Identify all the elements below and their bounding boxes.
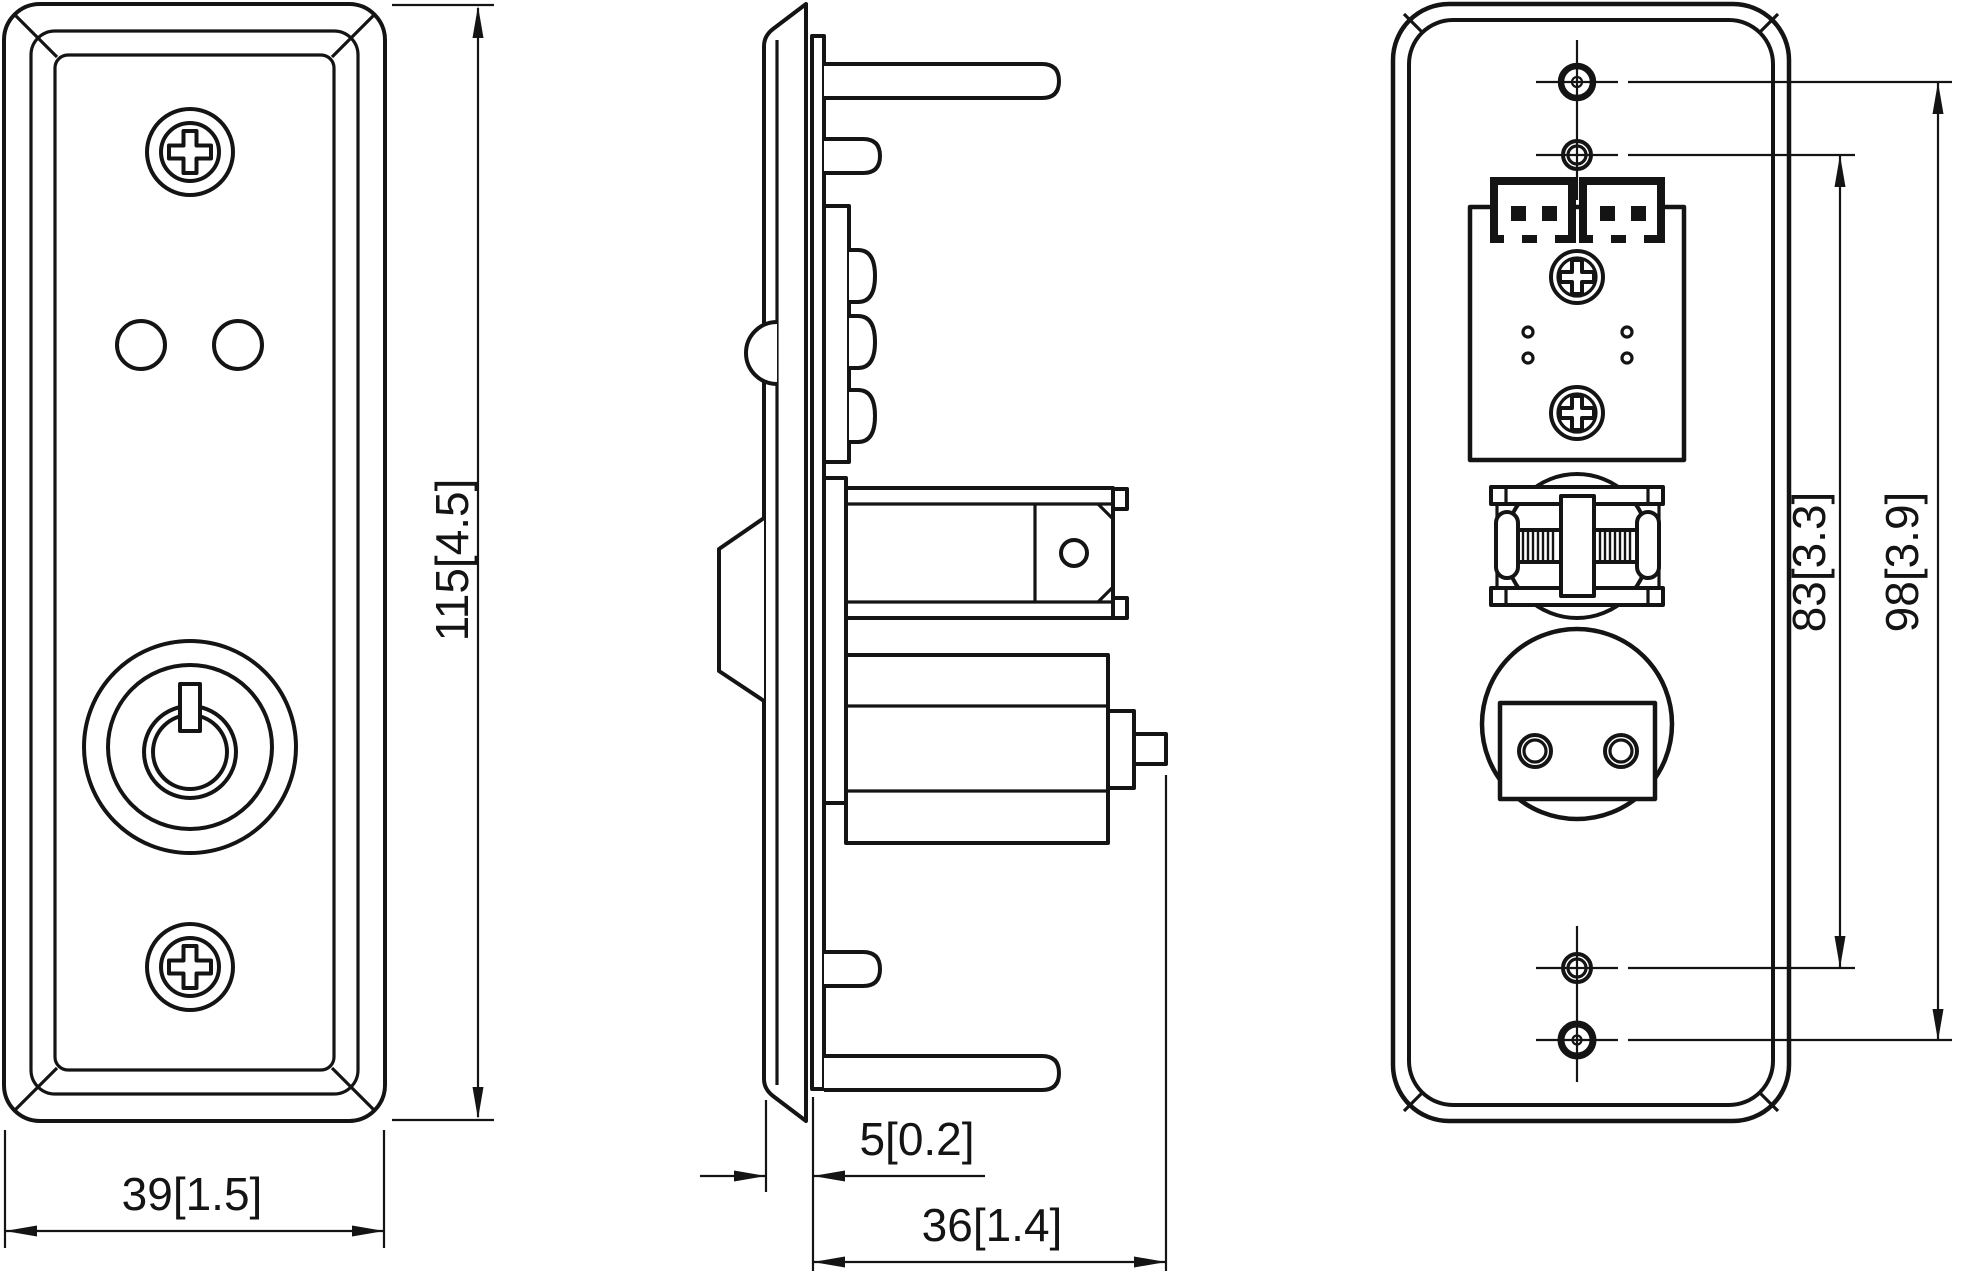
- dim-label-mount-depth: 36[1.4]: [922, 1199, 1063, 1251]
- back-screw-upper: [1551, 251, 1603, 303]
- dim-label-front-height: 115[4.5]: [426, 479, 478, 642]
- dimension-front-height: 115[4.5]: [392, 5, 494, 1120]
- terminal-screw-shank-left: [1518, 530, 1561, 562]
- dim-label-plate-offset: 5[0.2]: [859, 1113, 974, 1165]
- side-peg-top-long: [824, 64, 1059, 98]
- front-led-hole-left: [117, 321, 165, 369]
- front-top-screw: [147, 109, 233, 195]
- side-peg-top-short: [824, 139, 880, 173]
- keyswitch-three-view-drawing: 115[4.5] 39[1.5]: [0, 0, 1980, 1273]
- front-view: [4, 4, 385, 1121]
- side-connector-housing: [824, 206, 875, 462]
- front-plate-face: [55, 55, 334, 1070]
- key-slot: [180, 684, 200, 731]
- side-cylinder-body: [846, 655, 1166, 843]
- technical-drawing-canvas: 115[4.5] 39[1.5]: [0, 0, 1980, 1273]
- side-led-bump: [746, 322, 777, 384]
- side-peg-bottom-short: [824, 952, 880, 986]
- side-shaft-tip: [1134, 734, 1166, 764]
- back-terminal-block: [1491, 474, 1663, 618]
- side-peg-bottom-long: [824, 1056, 1059, 1090]
- dim-label-hole-span-outer: 98[3.9]: [1876, 492, 1928, 633]
- front-bottom-screw: [147, 924, 233, 1010]
- front-key-cylinder: [84, 641, 296, 853]
- back-screw-lower: [1551, 387, 1603, 439]
- front-led-hole-right: [214, 321, 262, 369]
- dim-label-hole-span-inner: 83[3.3]: [1783, 492, 1835, 633]
- dimension-front-width: 39[1.5]: [5, 1130, 384, 1248]
- back-key-cylinder: [1482, 629, 1672, 819]
- dimension-hole-span-inner: 83[3.3]: [1628, 155, 1855, 968]
- phillips-cross-icon: [1560, 260, 1594, 294]
- terminal-screw-head-right: [1637, 512, 1659, 578]
- side-collar: [824, 478, 846, 803]
- thread-hatching-left: [1523, 532, 1553, 560]
- phillips-cross-icon: [1560, 396, 1594, 430]
- side-plate-bezel: [764, 4, 806, 1121]
- dim-label-front-width: 39[1.5]: [122, 1168, 263, 1220]
- back-view: [1393, 4, 1789, 1121]
- side-view: [719, 4, 1166, 1121]
- thread-hatching-right: [1600, 532, 1630, 560]
- terminal-divider: [1561, 496, 1594, 596]
- phillips-cross-icon: [169, 946, 211, 988]
- back-indicator-dots: [1523, 327, 1632, 363]
- phillips-cross-icon: [169, 131, 211, 173]
- front-plate-bevel: [31, 31, 358, 1094]
- dimension-mount-depth: 36[1.4]: [813, 775, 1166, 1271]
- terminal-screw-head-left: [1496, 512, 1518, 578]
- side-key-nose: [719, 518, 764, 701]
